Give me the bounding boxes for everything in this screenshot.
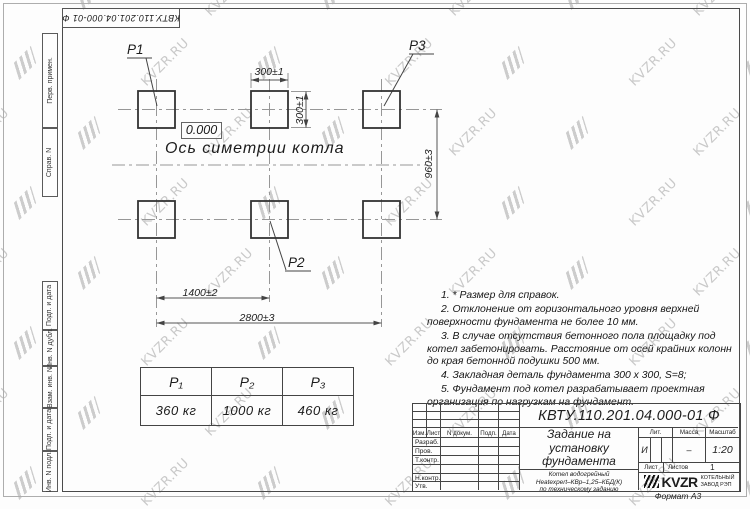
dim-plate-height: 300±1 [294, 89, 306, 131]
lit-cell-2 [651, 438, 662, 463]
company-logo-text: KVZR [662, 474, 698, 490]
kvzr-logo-icon [644, 475, 659, 488]
sheet-label: Лист [639, 463, 664, 473]
title-block: КВТУ.110.201.04.000-01 Ф Изм. Лист N док… [412, 403, 741, 492]
col-podp: Подп. [479, 428, 499, 438]
massa-label: Масса [673, 428, 706, 438]
col-izm: Изм. [413, 428, 427, 438]
note: 4. Закладная деталь фундамента 300 x 300… [427, 370, 739, 383]
sig-row-label: Утв. [413, 482, 441, 490]
product-line: Котел водогрейный [520, 471, 638, 479]
sig-row: Пров. [413, 447, 519, 456]
load-table-header-row: P₁ P₂ P₃ [141, 368, 354, 396]
load-table-header: P₃ [283, 368, 354, 396]
product-line: Heatexpert–КВр–1,25–КБД(К) [520, 479, 638, 487]
sig-row: Разраб. [413, 438, 519, 447]
lit-cell-3 [662, 438, 673, 463]
company-name-line2: ЗАВОД РЭП [701, 482, 735, 488]
company-name: КОТЕЛЬНЫЙ ЗАВОД РЭП [701, 475, 735, 488]
level-mark: 0.000 [181, 122, 222, 139]
sheets-value: 1 [710, 463, 714, 472]
sheets-cell: Листов 1 [664, 463, 739, 473]
col-ndoc: N докум. [441, 428, 479, 438]
note: 1. * Размер для справок. [427, 290, 739, 303]
leader-label-p2: P2 [288, 255, 305, 270]
symmetry-axis-label: Ось симетрии котла [165, 140, 345, 158]
sig-row-label: Т.контр. [413, 456, 441, 465]
center-lines [112, 79, 442, 327]
dim-plate-width: 300±1 [248, 66, 290, 78]
note: 2. Отклонение от горизонтального уровня … [427, 304, 739, 330]
note: 3. В случае отсутствия бетонного пола пл… [427, 331, 739, 370]
revision-row [413, 404, 519, 412]
technical-notes: 1. * Размер для справок. 2. Отклонение о… [427, 290, 739, 411]
col-data: Дата [499, 428, 519, 438]
revision-row [413, 412, 519, 420]
company-name-line1: КОТЕЛЬНЫЙ [701, 475, 735, 481]
dim-total-span: 2800±3 [227, 312, 287, 324]
sig-row: Утв. [413, 482, 519, 490]
drawing-sheet: { "watermark": { "text": "KVZR.RU" }, "t… [0, 0, 750, 500]
scale-value: 1:20 [706, 438, 739, 463]
company-cell: KVZR КОТЕЛЬНЫЙ ЗАВОД РЭП [639, 473, 739, 490]
title-block-product: Котел водогрейный Heatexpert–КВр–1,25–КБ… [519, 470, 638, 490]
load-table-value: 360 кг [141, 396, 212, 426]
lit-label: Лит. [639, 428, 673, 438]
dim-row-spacing: 960±3 [423, 141, 435, 187]
load-table-value: 1000 кг [212, 396, 283, 426]
load-table-header: P₂ [212, 368, 283, 396]
lit-value: И [639, 438, 651, 463]
sig-row-label: Пров. [413, 447, 441, 456]
leader-label-p1: P1 [127, 42, 144, 57]
title-block-doc-title: Задание на установку фундамента [519, 428, 638, 470]
col-list: Лист [427, 428, 441, 438]
sig-row: Т.контр. [413, 456, 519, 465]
sig-row [413, 465, 519, 474]
title-block-doc-number: КВТУ.110.201.04.000-01 Ф [519, 404, 738, 428]
doc-title-text: Задание на установку фундамента [533, 428, 625, 468]
sig-row-label: Н.контр. [413, 474, 441, 482]
massa-value: – [673, 438, 706, 463]
sig-row: Н.контр. [413, 474, 519, 482]
load-table-value-row: 360 кг 1000 кг 460 кг [141, 396, 354, 426]
scale-label: Масштаб [706, 428, 739, 438]
load-table-header: P₁ [141, 368, 212, 396]
dim-col-spacing: 1400±2 [170, 287, 230, 299]
leader-label-p3: P3 [409, 38, 426, 53]
sheets-label: Листов [668, 464, 688, 471]
sig-row-label [413, 465, 441, 474]
revision-row [413, 420, 519, 428]
sig-row-label: Разраб. [413, 438, 441, 447]
load-table-value: 460 кг [283, 396, 354, 426]
load-table: P₁ P₂ P₃ 360 кг 1000 кг 460 кг [140, 367, 354, 426]
title-block-column-headers: Изм. Лист N докум. Подп. Дата [413, 428, 519, 438]
title-block-right: Лит. Масса Масштаб И – 1:20 Лист Листов … [638, 428, 738, 490]
